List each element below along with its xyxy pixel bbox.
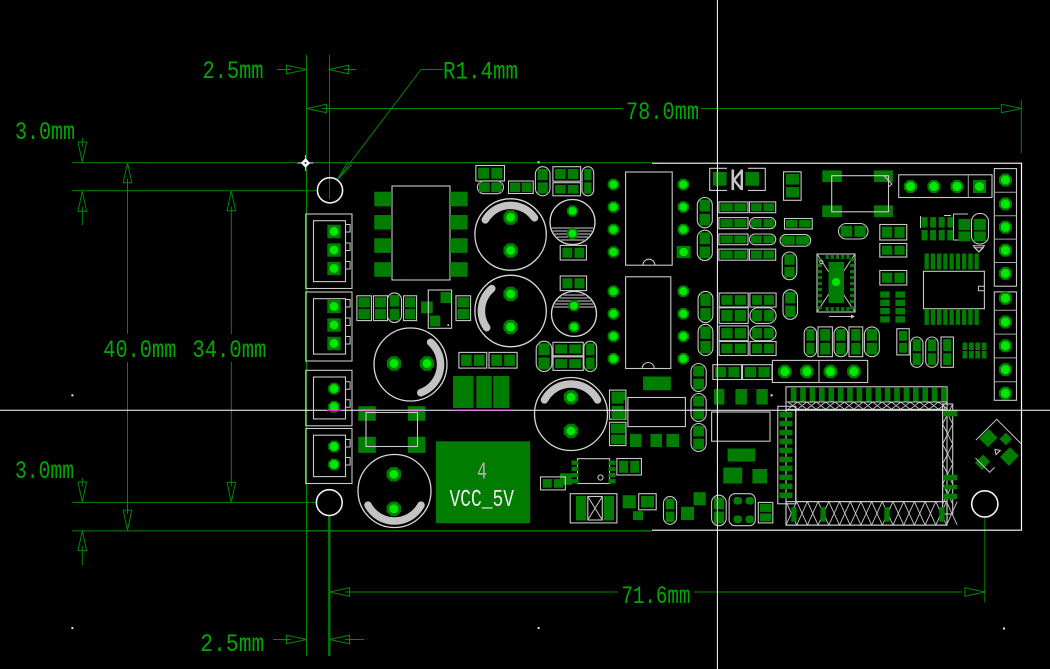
svg-text:3.0mm: 3.0mm (15, 457, 74, 486)
svg-text:2.5mm: 2.5mm (200, 630, 264, 659)
svg-text:2.5mm: 2.5mm (203, 57, 264, 86)
svg-text:3.0mm: 3.0mm (15, 118, 75, 147)
svg-text:71.6mm: 71.6mm (621, 582, 690, 611)
svg-text:40.0mm: 40.0mm (103, 336, 176, 365)
svg-text:78.0mm: 78.0mm (626, 98, 699, 127)
svg-text:34.0mm: 34.0mm (192, 336, 266, 365)
svg-text:R1.4mm: R1.4mm (443, 58, 518, 87)
svg-text:4: 4 (477, 460, 487, 487)
svg-text:VCC_5V: VCC_5V (450, 487, 515, 514)
